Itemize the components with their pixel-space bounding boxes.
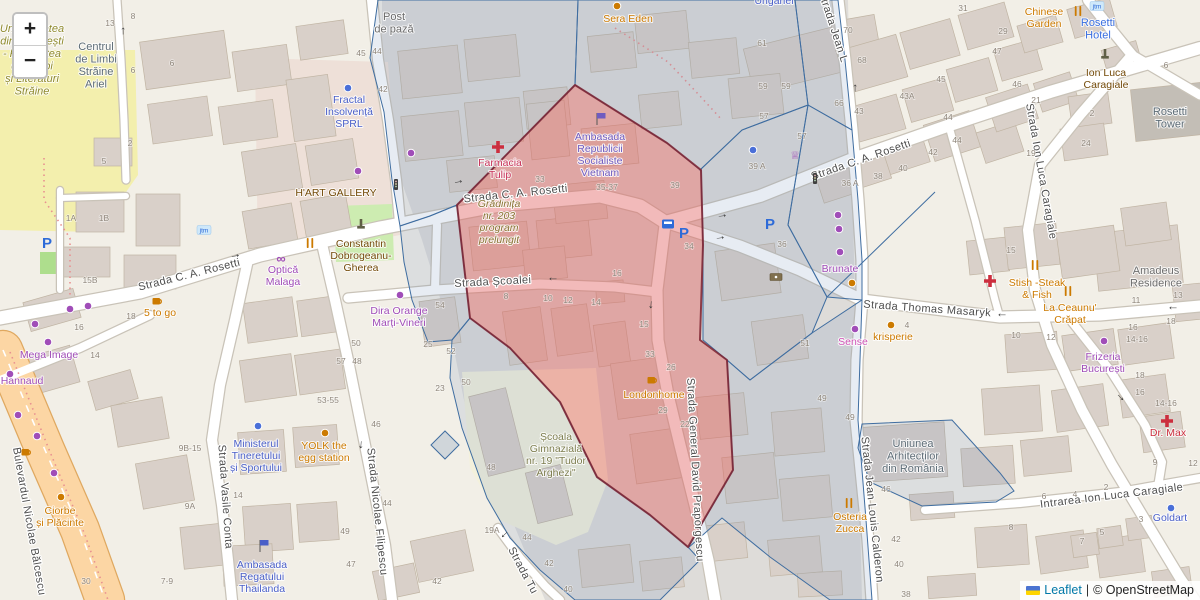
arrow-icon: → [846, 82, 860, 94]
attribution-bar: Leaflet | © OpenStreetMap [1020, 581, 1200, 600]
house-number: 12 [1188, 458, 1198, 468]
house-number: 18 [1166, 316, 1176, 326]
house-number: 8 [1009, 522, 1014, 532]
knife-bar [311, 238, 313, 248]
poi-dot [33, 432, 41, 440]
poi-dot [14, 411, 22, 419]
poi-label: Brunate [822, 263, 859, 275]
poi-label-line: Garden [1026, 18, 1061, 30]
house-number: 70 [843, 25, 853, 35]
poi-label: H'ART GALLERY [295, 187, 376, 199]
oneway-arrow: → [547, 274, 559, 288]
P-icon: P [679, 225, 689, 242]
poi-label-line: Ariel [85, 79, 107, 91]
house-number: 48 [486, 462, 496, 472]
building [296, 20, 348, 60]
poi-label-line: Fractal [333, 94, 365, 106]
poi-label-line: Ministerul [234, 438, 279, 450]
house-number: 59 [758, 81, 768, 91]
crown-glyph: ♕ [790, 150, 800, 162]
poi-label: Mega Image [20, 349, 79, 361]
building [305, 138, 359, 185]
house-number: 48 [352, 356, 362, 366]
knife-bar [1079, 6, 1081, 16]
building [975, 524, 1030, 568]
poi-dot [344, 84, 352, 92]
poi-label-line: de Limbi [75, 54, 117, 66]
poi-label-line: Post [383, 11, 405, 23]
building [927, 573, 976, 598]
road-lane-1a-horiz [60, 196, 126, 198]
cafe-icon [22, 449, 31, 456]
ukraine-flag-icon [1026, 586, 1040, 595]
oneway-arrow: → [228, 246, 242, 262]
house-number: 42 [432, 576, 442, 586]
house-number: 16 [1135, 387, 1145, 397]
oneway-arrow: → [713, 228, 727, 244]
building [1121, 202, 1172, 246]
house-number: 7-9 [161, 576, 174, 586]
house-number: 46 [1012, 79, 1022, 89]
poi-dot [749, 146, 757, 154]
house-number: 31 [958, 3, 968, 13]
poi-dot [31, 320, 39, 328]
signal-dot [814, 180, 816, 182]
dot-icon [354, 167, 362, 175]
cup-body [153, 298, 161, 305]
cup-body [22, 449, 30, 456]
house-number: 66 [834, 98, 844, 108]
knife-bar [1036, 260, 1038, 270]
arrow-icon: → [1167, 303, 1179, 317]
dot-icon [407, 149, 415, 157]
poi-label-line: nr. 19 "Tudor [526, 455, 586, 467]
poi-label-line: Dira Orange [370, 305, 427, 317]
house-number: 46 [371, 419, 381, 429]
poi-dot [66, 305, 74, 313]
house-number: 16 [1128, 322, 1138, 332]
house-number: 16 [74, 322, 84, 332]
house-number: 3 [1139, 514, 1144, 524]
house-number: 44 [522, 532, 532, 542]
house-number: 35-37 [596, 182, 618, 192]
dot-icon [749, 146, 757, 154]
house-number: 16 [612, 268, 622, 278]
house-number: 14 [90, 350, 100, 360]
house-number: 5 [102, 156, 107, 166]
poi-dot [57, 493, 65, 501]
arrow-icon: → [713, 228, 727, 244]
house-number: 61 [757, 38, 767, 48]
poi-label: Ungariei [754, 0, 793, 7]
house-number: 23 [435, 383, 445, 393]
poi-label-line: Străine [15, 86, 50, 98]
dot-icon [887, 321, 895, 329]
bus-window [664, 222, 672, 225]
P-icon: P [42, 235, 52, 252]
signal-dot [395, 183, 397, 185]
poi-label-line: și Sportului [230, 462, 282, 474]
dot-icon [14, 411, 22, 419]
fork-bar [1065, 286, 1067, 296]
house-number: 47 [992, 46, 1002, 56]
dot-icon [836, 248, 844, 256]
transit-badge-text: jtm [1092, 4, 1102, 11]
openstreetmap-link[interactable]: © OpenStreetMap [1093, 583, 1194, 597]
poi-dot [407, 149, 415, 157]
dot-icon [31, 320, 39, 328]
poi-dot [613, 2, 621, 10]
poi-label-line: Osteria [833, 511, 867, 523]
dot-icon [848, 279, 856, 287]
oneway-arrow: → [356, 438, 371, 451]
badge-icon: jtm [1090, 2, 1104, 11]
monument-base [357, 226, 365, 229]
building [239, 354, 296, 403]
poi-label: Ion LucaCaragiale [1084, 67, 1129, 91]
dot-icon [1167, 504, 1175, 512]
bus-icon [662, 220, 674, 229]
poi-label: Dr. Max [1150, 427, 1187, 439]
arrow-icon: → [356, 438, 371, 451]
transit-badge-text: jtm [199, 228, 209, 235]
poi-dot [354, 167, 362, 175]
poi-label-line: Arhitecților [887, 451, 939, 463]
poi-dot [44, 338, 52, 346]
house-number: 49 [340, 526, 350, 536]
poi-label-line: Tulip [489, 169, 512, 181]
poi-label: RosettiHotel [1081, 17, 1115, 42]
signal-dot [395, 186, 397, 188]
house-number: 14-16 [1155, 398, 1177, 408]
house-number: 36 A [841, 178, 858, 188]
house-number: 2 [128, 138, 133, 148]
poi-dot [321, 429, 329, 437]
poi-label-line: Ambasada [237, 559, 287, 571]
dot-icon [57, 493, 65, 501]
poi-label-line: Frizeria [1085, 351, 1120, 363]
poi-label-line: Thailanda [239, 583, 285, 595]
house-number: 19 [1026, 148, 1036, 158]
poi-label-line: Grădinița [478, 198, 521, 210]
zoom-in-button[interactable]: + [14, 14, 46, 45]
poi-label: Sera Eden [603, 13, 653, 25]
parking-glyph: P [765, 216, 775, 233]
dot-icon [6, 370, 14, 378]
house-number: 49 [817, 393, 827, 403]
building [241, 143, 302, 196]
poi-label: 5 to go [144, 307, 176, 319]
flag-cloth [260, 540, 269, 546]
building [297, 502, 340, 543]
poi-dot [834, 211, 842, 219]
house-number: 15B [82, 275, 97, 285]
poi-label-line: Vietnam [581, 167, 620, 179]
dot-icon [1100, 337, 1108, 345]
house-number: 6 [170, 58, 175, 68]
knife-bar [1069, 286, 1071, 296]
house-number: 7 [1080, 536, 1085, 546]
house-number: 42 [544, 558, 554, 568]
house-number: 47 [346, 559, 356, 569]
monument-base [1101, 56, 1109, 59]
house-number: 22 [680, 419, 690, 429]
poi-label: Grădinițanr. 203programprelungit [478, 198, 521, 246]
dot-icon [44, 338, 52, 346]
house-number: 26 [666, 362, 676, 372]
museum-icon [770, 274, 782, 281]
poi-label-line: Residence [1130, 278, 1182, 290]
poi-label-line: Dr. Max [1150, 427, 1187, 439]
house-number: 57 [759, 111, 769, 121]
arrow-icon: → [547, 274, 559, 288]
house-number: 4 [905, 320, 910, 330]
zoom-out-button[interactable]: − [14, 45, 46, 77]
map-stage: Strada C. A. RosettiStrada C. A. Rosetti… [0, 0, 1200, 600]
fork-bar [307, 238, 309, 248]
poi-label-line: Zucca [836, 523, 865, 535]
poi-dot [396, 291, 404, 299]
house-number: 30 [81, 576, 91, 586]
poi-label-line: Constantin [336, 238, 386, 250]
house-number: 38 [873, 171, 883, 181]
poi-label-line: Hotel [1085, 30, 1111, 42]
house-number: 25 [423, 339, 433, 349]
crown-icon: ♕ [790, 150, 800, 162]
house-number: 42 [928, 147, 938, 157]
dot-icon [835, 225, 843, 233]
house-number: 57 [797, 131, 807, 141]
house-number: 6 [1164, 60, 1169, 70]
poi-label: AmbasadaRegatuluiThailanda [237, 559, 287, 595]
house-number: 4 [1073, 489, 1078, 499]
house-number: 8 [504, 291, 509, 301]
poi-label-line: program [478, 222, 518, 234]
poi-label-line: Străine [79, 66, 114, 78]
house-number: 38 [901, 589, 911, 599]
house-number: 9 [1153, 457, 1158, 467]
poi-label-line: Arghezi" [536, 467, 576, 479]
poi-label-line: Sense [838, 336, 868, 348]
cup-body [648, 377, 656, 384]
house-number: 6 [1042, 491, 1047, 501]
poi-label: OpticăMalaga [266, 264, 301, 288]
house-number: 45 [936, 74, 946, 84]
arrow-icon: → [996, 310, 1008, 324]
poi-label-line: București [1081, 363, 1125, 375]
house-number: 51 [800, 338, 810, 348]
poi-dot [848, 279, 856, 287]
poi-label-line: din România [882, 463, 945, 475]
poi-label-line: Rosetti [1153, 106, 1187, 118]
map-canvas[interactable]: Strada C. A. RosettiStrada C. A. Rosetti… [0, 0, 1200, 600]
poi-label-line: și Plăcinte [36, 517, 84, 529]
dot-icon [84, 302, 92, 310]
dot-icon [834, 211, 842, 219]
house-number: 2 [1090, 108, 1095, 118]
poi-label-line: Goldart [1153, 512, 1188, 524]
poi-dot [1167, 504, 1175, 512]
oneway-arrow: → [1167, 303, 1179, 317]
house-number: 45 [356, 48, 366, 58]
arrow-icon: → [646, 298, 661, 311]
P-icon: P [765, 216, 775, 233]
poi-label-line: Stish -Steak [1009, 277, 1066, 289]
poi-dot [836, 248, 844, 256]
house-number: 39 A [748, 161, 765, 171]
house-number: 44 [943, 112, 953, 122]
dot-icon [344, 84, 352, 92]
house-number: 34 [684, 241, 694, 251]
poi-label-line: nr. 203 [483, 210, 515, 222]
poi-label-line: H'ART GALLERY [295, 187, 376, 199]
poi-label-line: prelungit [478, 234, 520, 246]
leaflet-link[interactable]: Leaflet [1044, 583, 1082, 597]
poi-label: FrizeriaBucurești [1081, 351, 1125, 375]
house-number: 40 [894, 559, 904, 569]
house-number: 8 [131, 11, 136, 21]
glasses-icon: ∞ [276, 251, 285, 266]
poi-label: MinisterulTineretuluiși Sportului [230, 438, 282, 474]
poi-label-line: Sera Eden [603, 13, 653, 25]
building [1020, 436, 1072, 477]
house-number: 14 [233, 490, 243, 500]
house-number: 11 [1132, 295, 1141, 305]
house-number: 24 [1081, 138, 1091, 148]
badge-icon: jtm [197, 226, 211, 235]
building [1056, 225, 1120, 279]
house-number: 59 [781, 81, 791, 91]
poi-label-line: YOLK the [301, 440, 347, 452]
arrow-icon: → [114, 25, 128, 37]
building [218, 99, 278, 144]
house-number: 39 [670, 180, 680, 190]
poi-label: ChineseGarden [1025, 6, 1064, 30]
poi-label-line: Gherea [343, 262, 378, 274]
dot-icon [66, 305, 74, 313]
building [242, 297, 297, 344]
flag-cloth [597, 113, 606, 119]
house-number: 18 [1135, 370, 1145, 380]
house-number: 12 [563, 295, 573, 305]
building [1071, 532, 1100, 557]
poi-label: YOLK theegg station [298, 440, 350, 464]
poi-dot [6, 370, 14, 378]
poi-label: RosettiTower [1153, 106, 1187, 131]
house-number: 13 [1173, 290, 1183, 300]
poi-dot [84, 302, 92, 310]
poi-label-line: Uniunea [893, 438, 935, 450]
poi-label: Londonhome [623, 389, 684, 401]
poi-label-line: Tower [1155, 119, 1185, 131]
house-number: 2 [1104, 482, 1109, 492]
house-number: 29 [998, 26, 1008, 36]
house-number: 53-55 [317, 395, 339, 405]
house-number: 33 [535, 174, 545, 184]
poi-label: AmadeusResidence [1130, 265, 1182, 290]
glasses-glyph: ∞ [276, 251, 285, 266]
poi-label: Goldart [1153, 512, 1188, 524]
building [148, 96, 213, 144]
house-number: 14 [591, 297, 601, 307]
poi-label-line: Școala [540, 431, 572, 443]
poi-label-line: SPRL [335, 118, 363, 130]
monument-obelisk [360, 219, 363, 227]
dot-icon [396, 291, 404, 299]
house-number: 68 [857, 55, 867, 65]
house-number: 44 [952, 135, 962, 145]
house-number: 29 [658, 405, 668, 415]
house-number: 10 [543, 293, 553, 303]
house-number: 5 [1100, 527, 1105, 537]
poi-label-line: Ambasada [575, 131, 625, 143]
house-number: 33 [645, 349, 655, 359]
house-number: 57 [336, 356, 346, 366]
house-number: 21 [1031, 95, 1041, 105]
monument-obelisk [1104, 49, 1107, 57]
oneway-arrow: → [846, 82, 860, 94]
house-number: 1A [66, 213, 77, 223]
poi-label-line: Ciorbe [45, 505, 76, 517]
signal-dot [814, 177, 816, 179]
house-number: 44 [372, 46, 382, 56]
poi-label-line: Mega Image [20, 349, 79, 361]
poi-label-line: & Fish [1022, 289, 1052, 301]
house-number: 40 [563, 584, 573, 594]
house-number: 46 [881, 484, 891, 494]
poi-label: Sense [838, 336, 868, 348]
house-number: 1B [99, 213, 110, 223]
house-number: 54 [435, 300, 445, 310]
signal-icon [394, 179, 398, 190]
oneway-arrow: → [715, 206, 729, 222]
dot-icon [50, 469, 58, 477]
poi-label-line: Gimnazială [530, 443, 583, 455]
poi-label-line: de pază [374, 24, 414, 36]
poi-dot [1100, 337, 1108, 345]
signal-dot [814, 175, 816, 177]
dot-icon [254, 422, 262, 430]
poi-label-line: Brunate [822, 263, 859, 275]
dot-icon [851, 325, 859, 333]
house-number: 15 [639, 319, 649, 329]
poi-dot [50, 469, 58, 477]
poi-label-line: egg station [298, 452, 350, 464]
poi-label-line: La Ceaunu' [1043, 302, 1096, 314]
building [981, 385, 1042, 435]
house-number: 15 [1006, 245, 1016, 255]
dot-icon [33, 432, 41, 440]
dot-icon [321, 429, 329, 437]
house-number: 42 [378, 84, 388, 94]
poi-label-line: Chinese [1025, 6, 1064, 18]
knife-bar [850, 498, 852, 508]
zoom-control: + − [12, 12, 48, 79]
building [136, 194, 180, 246]
house-number: 42 [891, 534, 901, 544]
poi-label-line: Tineretului [232, 450, 281, 462]
building [111, 397, 170, 447]
parking-glyph: P [679, 225, 689, 242]
poi-label-line: Marți-Vineri [372, 317, 425, 329]
signal-icon [813, 173, 817, 184]
arrow-icon: → [715, 206, 729, 222]
house-number: 9A [185, 501, 196, 511]
poi-label-line: Londonhome [623, 389, 684, 401]
building [60, 247, 110, 277]
poi-label-line: Ion Luca [1086, 67, 1126, 79]
poi-label-line: Crăpat [1054, 314, 1086, 326]
